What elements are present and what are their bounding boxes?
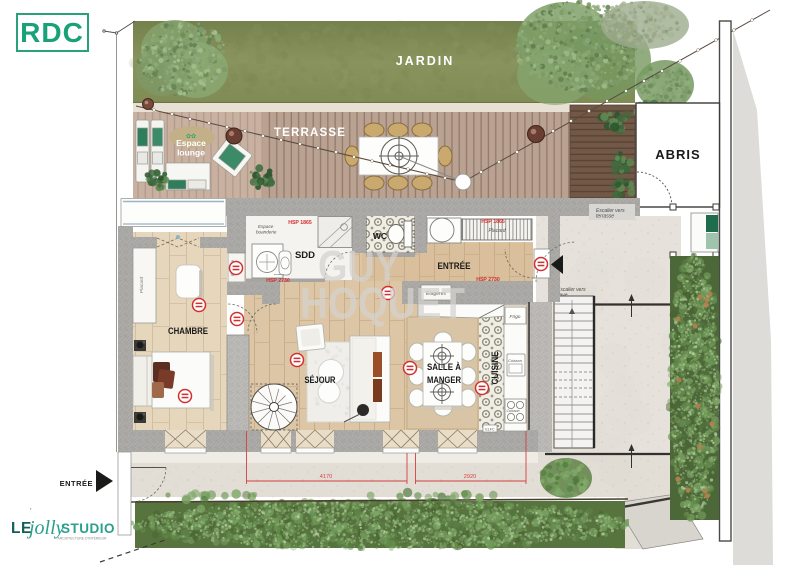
- svg-text:JARDIN: JARDIN: [396, 54, 455, 68]
- svg-text:✿✿: ✿✿: [186, 133, 196, 140]
- svg-text:TERRASSE: TERRASSE: [274, 127, 346, 139]
- svg-text:lounge: lounge: [177, 148, 205, 158]
- svg-text:ABRIS: ABRIS: [655, 147, 700, 162]
